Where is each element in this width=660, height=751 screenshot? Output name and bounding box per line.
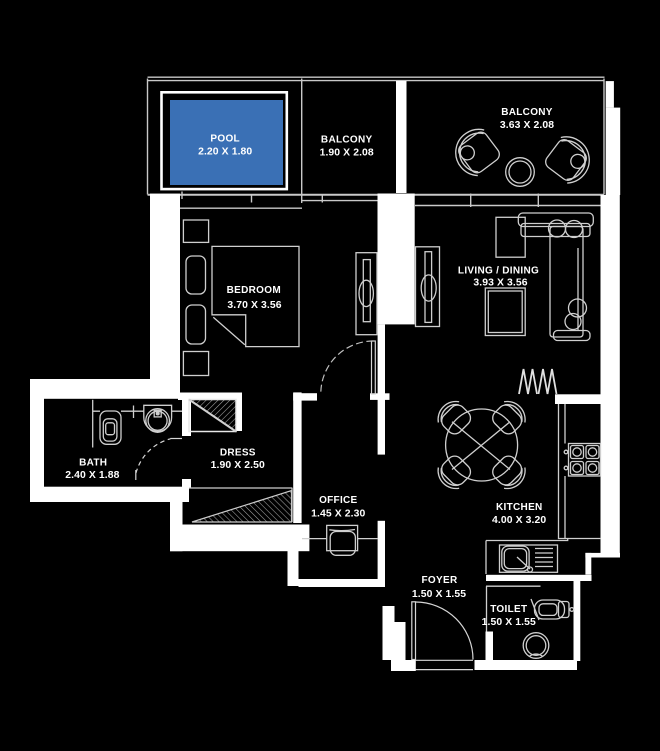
svg-text:1.45 X 2.30: 1.45 X 2.30 — [311, 508, 365, 519]
svg-text:OFFICE: OFFICE — [319, 495, 357, 506]
svg-text:2.40 X 1.88: 2.40 X 1.88 — [65, 470, 119, 481]
svg-text:2.20 X 1.80: 2.20 X 1.80 — [198, 147, 252, 158]
svg-text:POOL: POOL — [210, 134, 240, 145]
svg-text:3.70 X 3.56: 3.70 X 3.56 — [227, 300, 281, 311]
svg-text:DRESS: DRESS — [220, 447, 256, 458]
svg-text:1.50 X 1.55: 1.50 X 1.55 — [412, 589, 466, 600]
svg-text:1.90 X 2.08: 1.90 X 2.08 — [320, 148, 374, 159]
svg-text:BALCONY: BALCONY — [321, 134, 373, 145]
svg-text:3.63 X 2.08: 3.63 X 2.08 — [500, 120, 554, 131]
svg-text:TOILET: TOILET — [490, 604, 527, 615]
svg-text:KITCHEN: KITCHEN — [496, 502, 543, 513]
svg-text:FOYER: FOYER — [422, 575, 458, 586]
svg-text:BALCONY: BALCONY — [501, 107, 553, 118]
svg-text:1.90 X 2.50: 1.90 X 2.50 — [211, 460, 265, 471]
svg-text:BEDROOM: BEDROOM — [227, 285, 281, 296]
svg-text:3.93 X 3.56: 3.93 X 3.56 — [473, 277, 527, 288]
svg-text:LIVING / DINING: LIVING / DINING — [458, 265, 539, 276]
svg-text:BATH: BATH — [79, 457, 107, 468]
svg-text:4.00 X 3.20: 4.00 X 3.20 — [492, 515, 546, 526]
svg-text:1.50 X 1.55: 1.50 X 1.55 — [482, 617, 536, 628]
